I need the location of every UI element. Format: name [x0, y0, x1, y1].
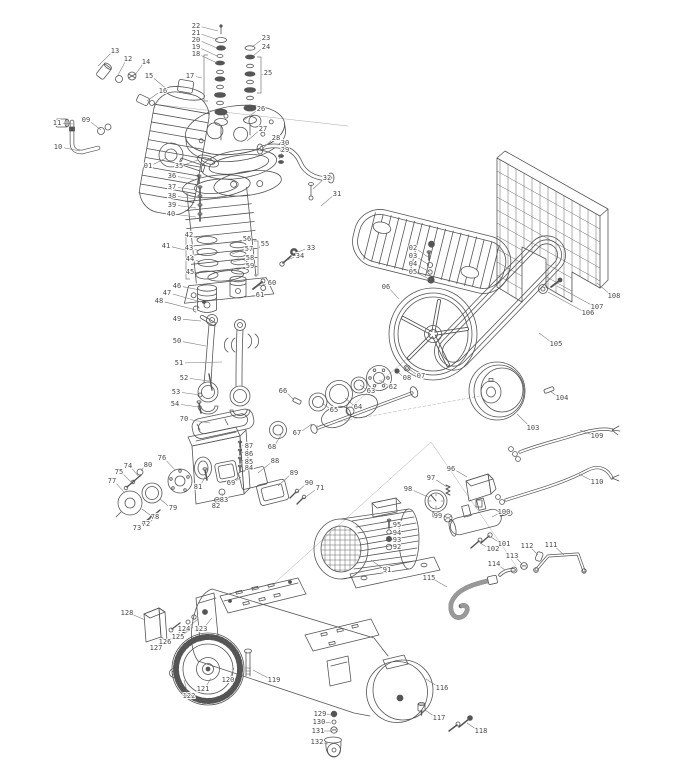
part-label-33: 33: [307, 244, 315, 252]
part-label-22: 22: [192, 22, 200, 30]
part-label-51: 51: [175, 359, 183, 367]
leader-line-08: [398, 372, 402, 376]
part-label-76: 76: [158, 454, 166, 462]
part-label-103: 103: [527, 424, 540, 432]
bracket-for-17: [204, 55, 208, 101]
part-label-01: 01: [144, 162, 152, 170]
part-label-65: 65: [330, 406, 338, 414]
part-label-32: 32: [323, 174, 331, 182]
leader-line-85: [242, 460, 243, 461]
leader-line-40: [177, 214, 196, 217]
bracket-for-25: [257, 57, 261, 93]
part-label-83: 83: [220, 496, 228, 504]
part-label-100: 100: [498, 508, 511, 516]
part-label-46: 46: [173, 282, 181, 290]
caster-assembly: [325, 711, 342, 757]
part-label-81: 81: [194, 483, 202, 491]
leader-line-50: [183, 342, 206, 346]
part-label-101: 101: [498, 540, 511, 548]
connecting-rods: [198, 315, 250, 419]
part-label-112: 112: [521, 542, 534, 550]
part-label-47: 47: [163, 289, 171, 297]
leader-line-77: [116, 484, 124, 492]
part-label-30: 30: [281, 139, 289, 147]
leader-line-31: [321, 196, 332, 206]
leader-line-09: [91, 122, 101, 130]
part-label-123: 123: [195, 625, 208, 633]
part-label-45: 45: [186, 268, 194, 276]
part-label-37: 37: [168, 183, 176, 191]
part-label-129: 129: [314, 710, 327, 718]
part-label-07: 07: [417, 372, 425, 380]
part-label-54: 54: [171, 400, 179, 408]
part-label-06: 06: [382, 283, 390, 291]
part-label-28: 28: [272, 134, 280, 142]
leader-line-32: [313, 180, 322, 189]
part-label-92: 92: [393, 543, 401, 551]
part-label-119: 119: [268, 676, 281, 684]
part-label-36: 36: [168, 172, 176, 180]
part-label-70: 70: [180, 415, 188, 423]
leader-line-115: [434, 580, 447, 587]
part-label-94: 94: [393, 529, 401, 537]
leader-line-119: [253, 670, 269, 678]
motor-mount-plate: [305, 619, 379, 651]
leader-line-06: [390, 290, 399, 299]
tank-screws: [449, 716, 472, 731]
leader-line-96: [456, 471, 467, 477]
part-label-125: 125: [172, 633, 185, 641]
leader-line-27: [247, 131, 258, 141]
part-label-88: 88: [271, 457, 279, 465]
valve-stack-right: [244, 46, 257, 135]
crankshaft: [310, 386, 420, 435]
part-label-20: 20: [192, 36, 200, 44]
leader-line-75: [124, 475, 132, 483]
part-label-59: 59: [246, 262, 254, 270]
electric-motor: [314, 498, 440, 588]
part-label-93: 93: [393, 536, 401, 544]
leader-line-86: [242, 452, 243, 453]
part-label-39: 39: [168, 201, 176, 209]
part-label-55: 55: [261, 240, 269, 248]
leader-line-88: [258, 463, 270, 473]
part-label-69: 69: [227, 479, 235, 487]
part-label-21: 21: [192, 29, 200, 37]
part-label-68: 68: [268, 443, 276, 451]
part-label-64: 64: [354, 403, 362, 411]
leader-line-79: [160, 499, 168, 506]
leader-line-17: [196, 77, 202, 78]
leader-line-107: [557, 286, 592, 305]
part-label-35: 35: [175, 162, 183, 170]
part-label-31: 31: [333, 190, 341, 198]
part-label-110: 110: [591, 478, 604, 486]
part-label-114: 114: [488, 560, 501, 568]
leader-line-20: [202, 41, 217, 48]
part-label-09: 09: [82, 116, 90, 124]
part-label-96: 96: [447, 465, 455, 473]
part-label-27: 27: [259, 125, 267, 133]
part-label-77: 77: [108, 477, 116, 485]
part-label-124: 124: [178, 625, 191, 633]
part-label-86: 86: [245, 450, 253, 458]
part-label-16: 16: [159, 87, 167, 95]
part-label-24: 24: [262, 43, 270, 51]
part-label-10: 10: [54, 143, 62, 151]
part-label-99: 99: [434, 512, 442, 520]
leader-line-12: [117, 62, 125, 77]
part-label-11: 11: [53, 119, 61, 127]
part-label-95: 95: [393, 521, 401, 529]
leader-line-36: [178, 177, 196, 180]
part-label-116: 116: [436, 684, 449, 692]
axle-bolt: [245, 649, 252, 676]
leader-line-130: [325, 722, 331, 723]
leader-line-21: [202, 34, 218, 40]
leader-line-128: [133, 614, 145, 620]
part-label-130: 130: [313, 718, 326, 726]
part-label-131: 131: [312, 727, 325, 735]
part-label-40: 40: [167, 210, 175, 218]
part-label-108: 108: [608, 292, 621, 300]
tank-wheel: [170, 633, 245, 705]
leader-line-97: [436, 480, 447, 487]
part-label-53: 53: [172, 388, 180, 396]
part-label-50: 50: [173, 337, 181, 345]
leader-line-76: [166, 461, 175, 470]
part-label-72: 72: [142, 520, 150, 528]
part-label-109: 109: [591, 432, 604, 440]
motor-pulley: [469, 362, 525, 420]
part-label-118: 118: [475, 727, 488, 735]
part-label-120: 120: [222, 676, 235, 684]
part-label-97: 97: [427, 474, 435, 482]
part-label-61: 61: [256, 291, 264, 299]
braided-hose: [451, 575, 498, 618]
flywheel: [389, 288, 477, 380]
part-label-56: 56: [243, 235, 251, 243]
part-label-105: 105: [550, 340, 563, 348]
leader-line-22: [202, 27, 218, 31]
bearing-cam: [159, 143, 220, 172]
leader-line-106: [548, 292, 583, 311]
part-label-85: 85: [245, 458, 253, 466]
leader-line-53: [182, 392, 200, 395]
leader-line-24: [253, 49, 261, 56]
piston-left: [198, 285, 217, 313]
part-label-107: 107: [591, 303, 604, 311]
leader-line-35: [185, 160, 198, 165]
leader-line-41: [172, 247, 185, 250]
leader-line-129: [326, 714, 331, 715]
part-label-41: 41: [162, 242, 170, 250]
leader-line-110: [579, 474, 592, 480]
leader-line-89: [278, 476, 289, 486]
leader-line-47: [173, 294, 201, 302]
leader-line-23: [252, 40, 261, 47]
part-label-13: 13: [111, 47, 119, 55]
part-label-44: 44: [186, 255, 194, 263]
part-label-42: 42: [185, 231, 193, 239]
part-label-73: 73: [133, 524, 141, 532]
bearing-shells: [224, 334, 258, 352]
part-label-127: 127: [150, 644, 163, 652]
leader-line-52: [190, 378, 209, 381]
part-label-75: 75: [115, 468, 123, 476]
filter-fittings: [96, 62, 136, 83]
part-label-62: 62: [389, 383, 397, 391]
parts-diagram-canvas: 0102030405060708091011121314151617181920…: [0, 0, 686, 768]
part-label-25: 25: [264, 69, 272, 77]
air-tank: [191, 578, 433, 723]
part-label-104: 104: [556, 394, 569, 402]
part-label-121: 121: [197, 685, 210, 693]
part-label-38: 38: [168, 192, 176, 200]
part-label-80: 80: [144, 461, 152, 469]
part-label-23: 23: [262, 34, 270, 42]
shaft-key: [544, 386, 555, 393]
unloader-pipe: [56, 94, 155, 152]
bearing-68: [270, 422, 287, 439]
part-label-05: 05: [409, 268, 417, 276]
part-label-111: 111: [545, 541, 558, 549]
compressor-exploded-diagram: 0102030405060708091011121314151617181920…: [0, 0, 686, 768]
part-label-08: 08: [403, 374, 411, 382]
tank-leg: [327, 656, 351, 686]
part-label-04: 04: [409, 260, 417, 268]
leader-line-39: [178, 205, 196, 208]
leader-line-54: [181, 404, 199, 407]
part-labels: 0102030405060708091011121314151617181920…: [53, 22, 621, 746]
part-label-115: 115: [423, 574, 436, 582]
part-label-71: 71: [316, 484, 324, 492]
part-label-12: 12: [124, 55, 132, 63]
part-label-29: 29: [281, 146, 289, 154]
part-label-18: 18: [192, 50, 200, 58]
part-label-79: 79: [169, 504, 177, 512]
part-label-14: 14: [142, 58, 150, 66]
leader-line-51: [185, 362, 222, 363]
part-label-43: 43: [185, 244, 193, 252]
part-label-57: 57: [245, 245, 253, 253]
leader-line-37: [178, 187, 196, 190]
leader-line-03: [418, 258, 429, 265]
belt-guard: [497, 150, 608, 359]
leader-line-14: [135, 65, 142, 75]
part-label-34: 34: [296, 252, 304, 260]
wrist-pin-parts: [193, 279, 265, 324]
part-label-67: 67: [293, 429, 301, 437]
part-label-89: 89: [290, 469, 298, 477]
leader-line-78: [142, 509, 150, 515]
part-label-78: 78: [151, 513, 159, 521]
part-label-90: 90: [305, 479, 313, 487]
part-label-03: 03: [409, 252, 417, 260]
part-label-19: 19: [192, 43, 200, 51]
part-label-74: 74: [124, 462, 132, 470]
part-label-26: 26: [257, 105, 265, 113]
part-label-128: 128: [121, 609, 134, 617]
part-label-63: 63: [367, 387, 375, 395]
leader-line-132: [323, 743, 328, 744]
part-label-102: 102: [487, 545, 500, 553]
part-label-117: 117: [433, 714, 446, 722]
part-label-52: 52: [180, 374, 188, 382]
part-label-17: 17: [186, 72, 194, 80]
leader-line-49: [183, 319, 201, 321]
part-label-98: 98: [404, 485, 412, 493]
leader-line-66: [288, 394, 294, 400]
part-label-113: 113: [506, 552, 519, 560]
leader-line-98: [414, 490, 428, 497]
leader-line-48: [165, 302, 196, 310]
gauge-nut: [444, 514, 452, 522]
part-label-58: 58: [246, 254, 254, 262]
part-label-60: 60: [268, 279, 276, 287]
part-label-15: 15: [145, 72, 153, 80]
leader-line-71: [303, 490, 315, 499]
leader-line-16: [147, 93, 158, 101]
part-label-122: 122: [183, 692, 196, 700]
part-label-66: 66: [279, 387, 287, 395]
part-label-48: 48: [155, 297, 163, 305]
leader-line-02: [418, 250, 428, 257]
leader-lines: [63, 27, 609, 744]
part-label-87: 87: [245, 442, 253, 450]
part-label-132: 132: [311, 738, 324, 746]
part-label-91: 91: [383, 566, 391, 574]
leader-line-68: [276, 435, 281, 444]
pressure-switch: [466, 474, 496, 507]
part-label-02: 02: [409, 244, 417, 252]
part-label-49: 49: [173, 315, 181, 323]
